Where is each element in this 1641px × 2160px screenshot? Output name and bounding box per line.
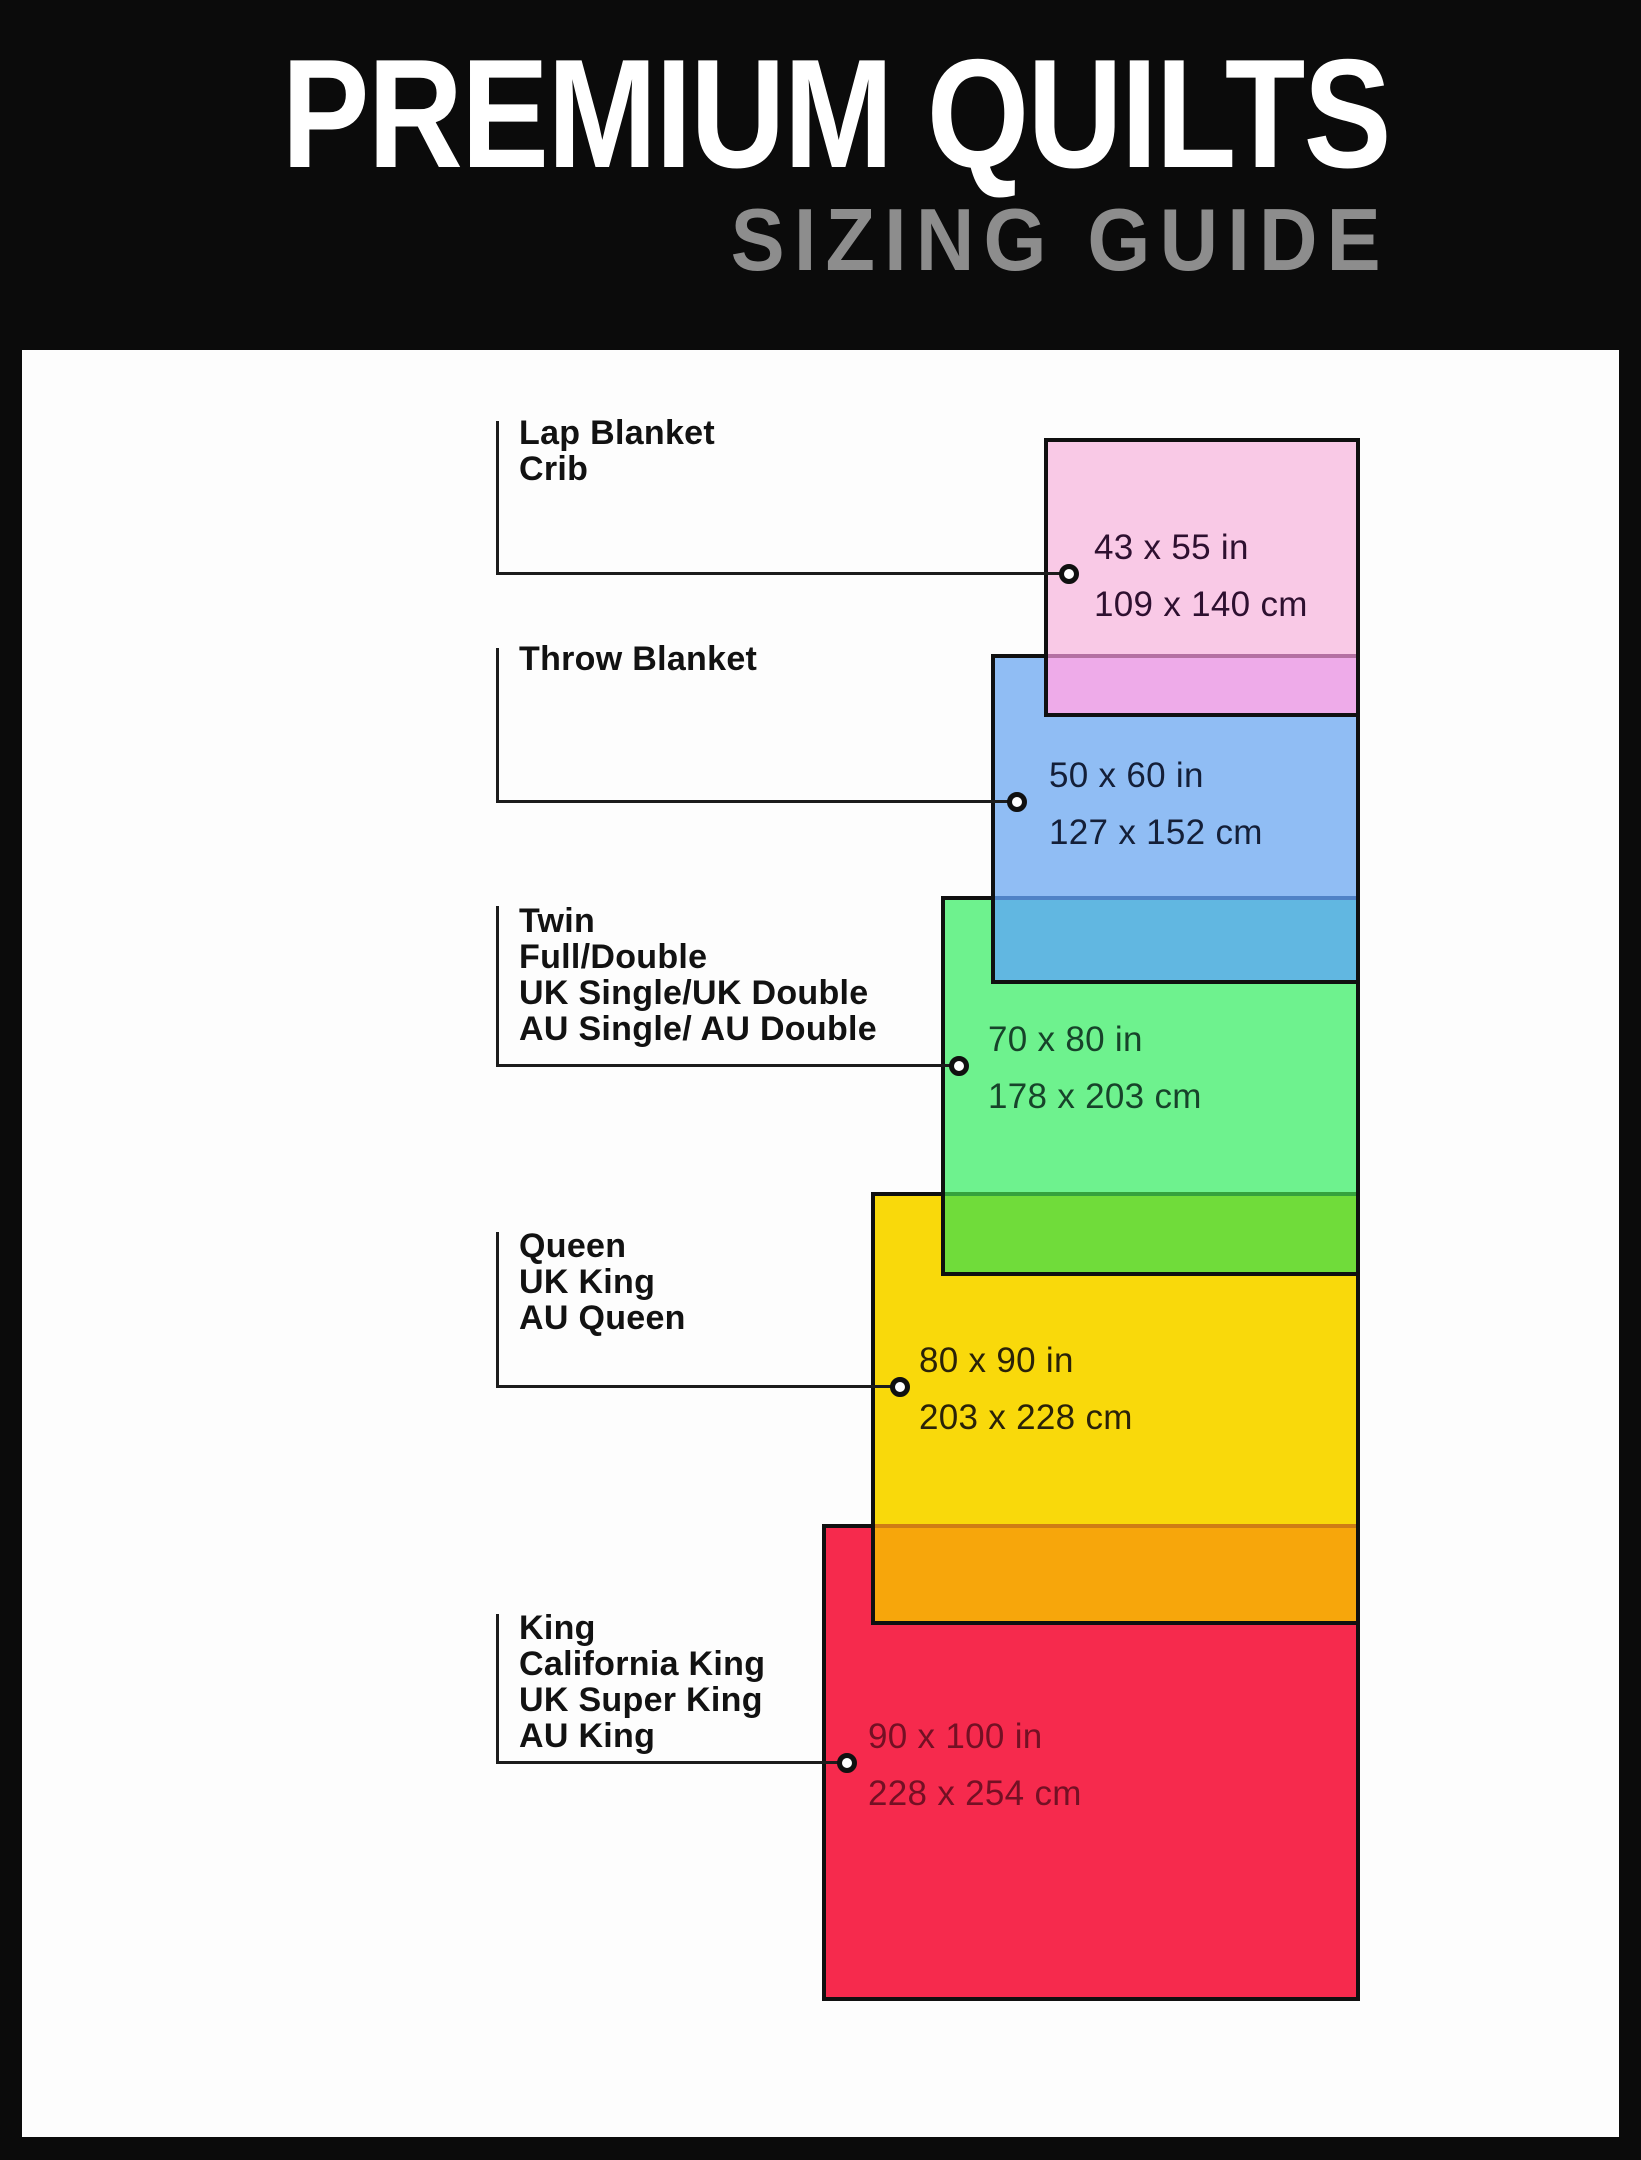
label-line: Queen	[519, 1228, 686, 1264]
leader-hline-king	[496, 1761, 847, 1764]
overlap-queen-king	[875, 1524, 1356, 1625]
quilt-sizing-infographic: PREMIUM QUILTS SIZING GUIDE Lap Blanket …	[0, 0, 1641, 2160]
label-line: California King	[519, 1646, 765, 1682]
dim-cm-twin: 178 x 203 cm	[988, 1077, 1202, 1117]
label-line: Throw Blanket	[519, 641, 757, 677]
size-label-king: King California King UK Super King AU Ki…	[519, 1610, 765, 1754]
overlap-throw-twin	[995, 896, 1356, 984]
leader-vline-king	[496, 1614, 499, 1762]
dim-cm-king: 228 x 254 cm	[868, 1774, 1082, 1814]
page-title: PREMIUM QUILTS	[282, 36, 1390, 191]
label-line: AU Single/ AU Double	[519, 1011, 877, 1047]
leader-vline-lap-crib	[496, 421, 499, 573]
dim-inches-throw: 50 x 60 in	[1049, 756, 1204, 796]
leader-hline-queen	[496, 1385, 900, 1388]
page-subtitle: SIZING GUIDE	[190, 196, 1390, 284]
leader-vline-throw	[496, 648, 499, 801]
leader-hline-throw	[496, 800, 1017, 803]
leader-dot-queen	[890, 1377, 910, 1397]
dim-inches-twin: 70 x 80 in	[988, 1020, 1143, 1060]
dim-inches-king: 90 x 100 in	[868, 1717, 1043, 1757]
leader-dot-twin	[949, 1056, 969, 1076]
leader-hline-twin	[496, 1064, 959, 1067]
dim-inches-lap-crib: 43 x 55 in	[1094, 528, 1249, 568]
label-line: UK King	[519, 1264, 686, 1300]
label-line: Twin	[519, 903, 877, 939]
dim-inches-queen: 80 x 90 in	[919, 1341, 1074, 1381]
dim-cm-queen: 203 x 228 cm	[919, 1398, 1133, 1438]
leader-dot-throw	[1007, 792, 1027, 812]
leader-dot-king	[837, 1753, 857, 1773]
overlap-lap-throw	[1048, 654, 1356, 717]
size-label-queen: Queen UK King AU Queen	[519, 1228, 686, 1336]
size-label-throw: Throw Blanket	[519, 641, 757, 677]
dim-cm-lap-crib: 109 x 140 cm	[1094, 585, 1308, 625]
leader-vline-queen	[496, 1232, 499, 1386]
size-label-twin: Twin Full/Double UK Single/UK Double AU …	[519, 903, 877, 1047]
diagram-panel	[22, 350, 1619, 2137]
label-line: Crib	[519, 451, 715, 487]
label-line: Lap Blanket	[519, 415, 715, 451]
label-line: King	[519, 1610, 765, 1646]
label-line: Full/Double	[519, 939, 877, 975]
label-line: UK Super King	[519, 1682, 765, 1718]
leader-dot-lap-crib	[1059, 564, 1079, 584]
leader-vline-twin	[496, 906, 499, 1065]
label-line: AU King	[519, 1718, 765, 1754]
size-label-lap-crib: Lap Blanket Crib	[519, 415, 715, 487]
leader-hline-lap-crib	[496, 572, 1069, 575]
overlap-twin-queen	[945, 1192, 1356, 1276]
dim-cm-throw: 127 x 152 cm	[1049, 813, 1263, 853]
label-line: AU Queen	[519, 1300, 686, 1336]
header: PREMIUM QUILTS SIZING GUIDE	[86, 36, 1390, 284]
label-line: UK Single/UK Double	[519, 975, 877, 1011]
